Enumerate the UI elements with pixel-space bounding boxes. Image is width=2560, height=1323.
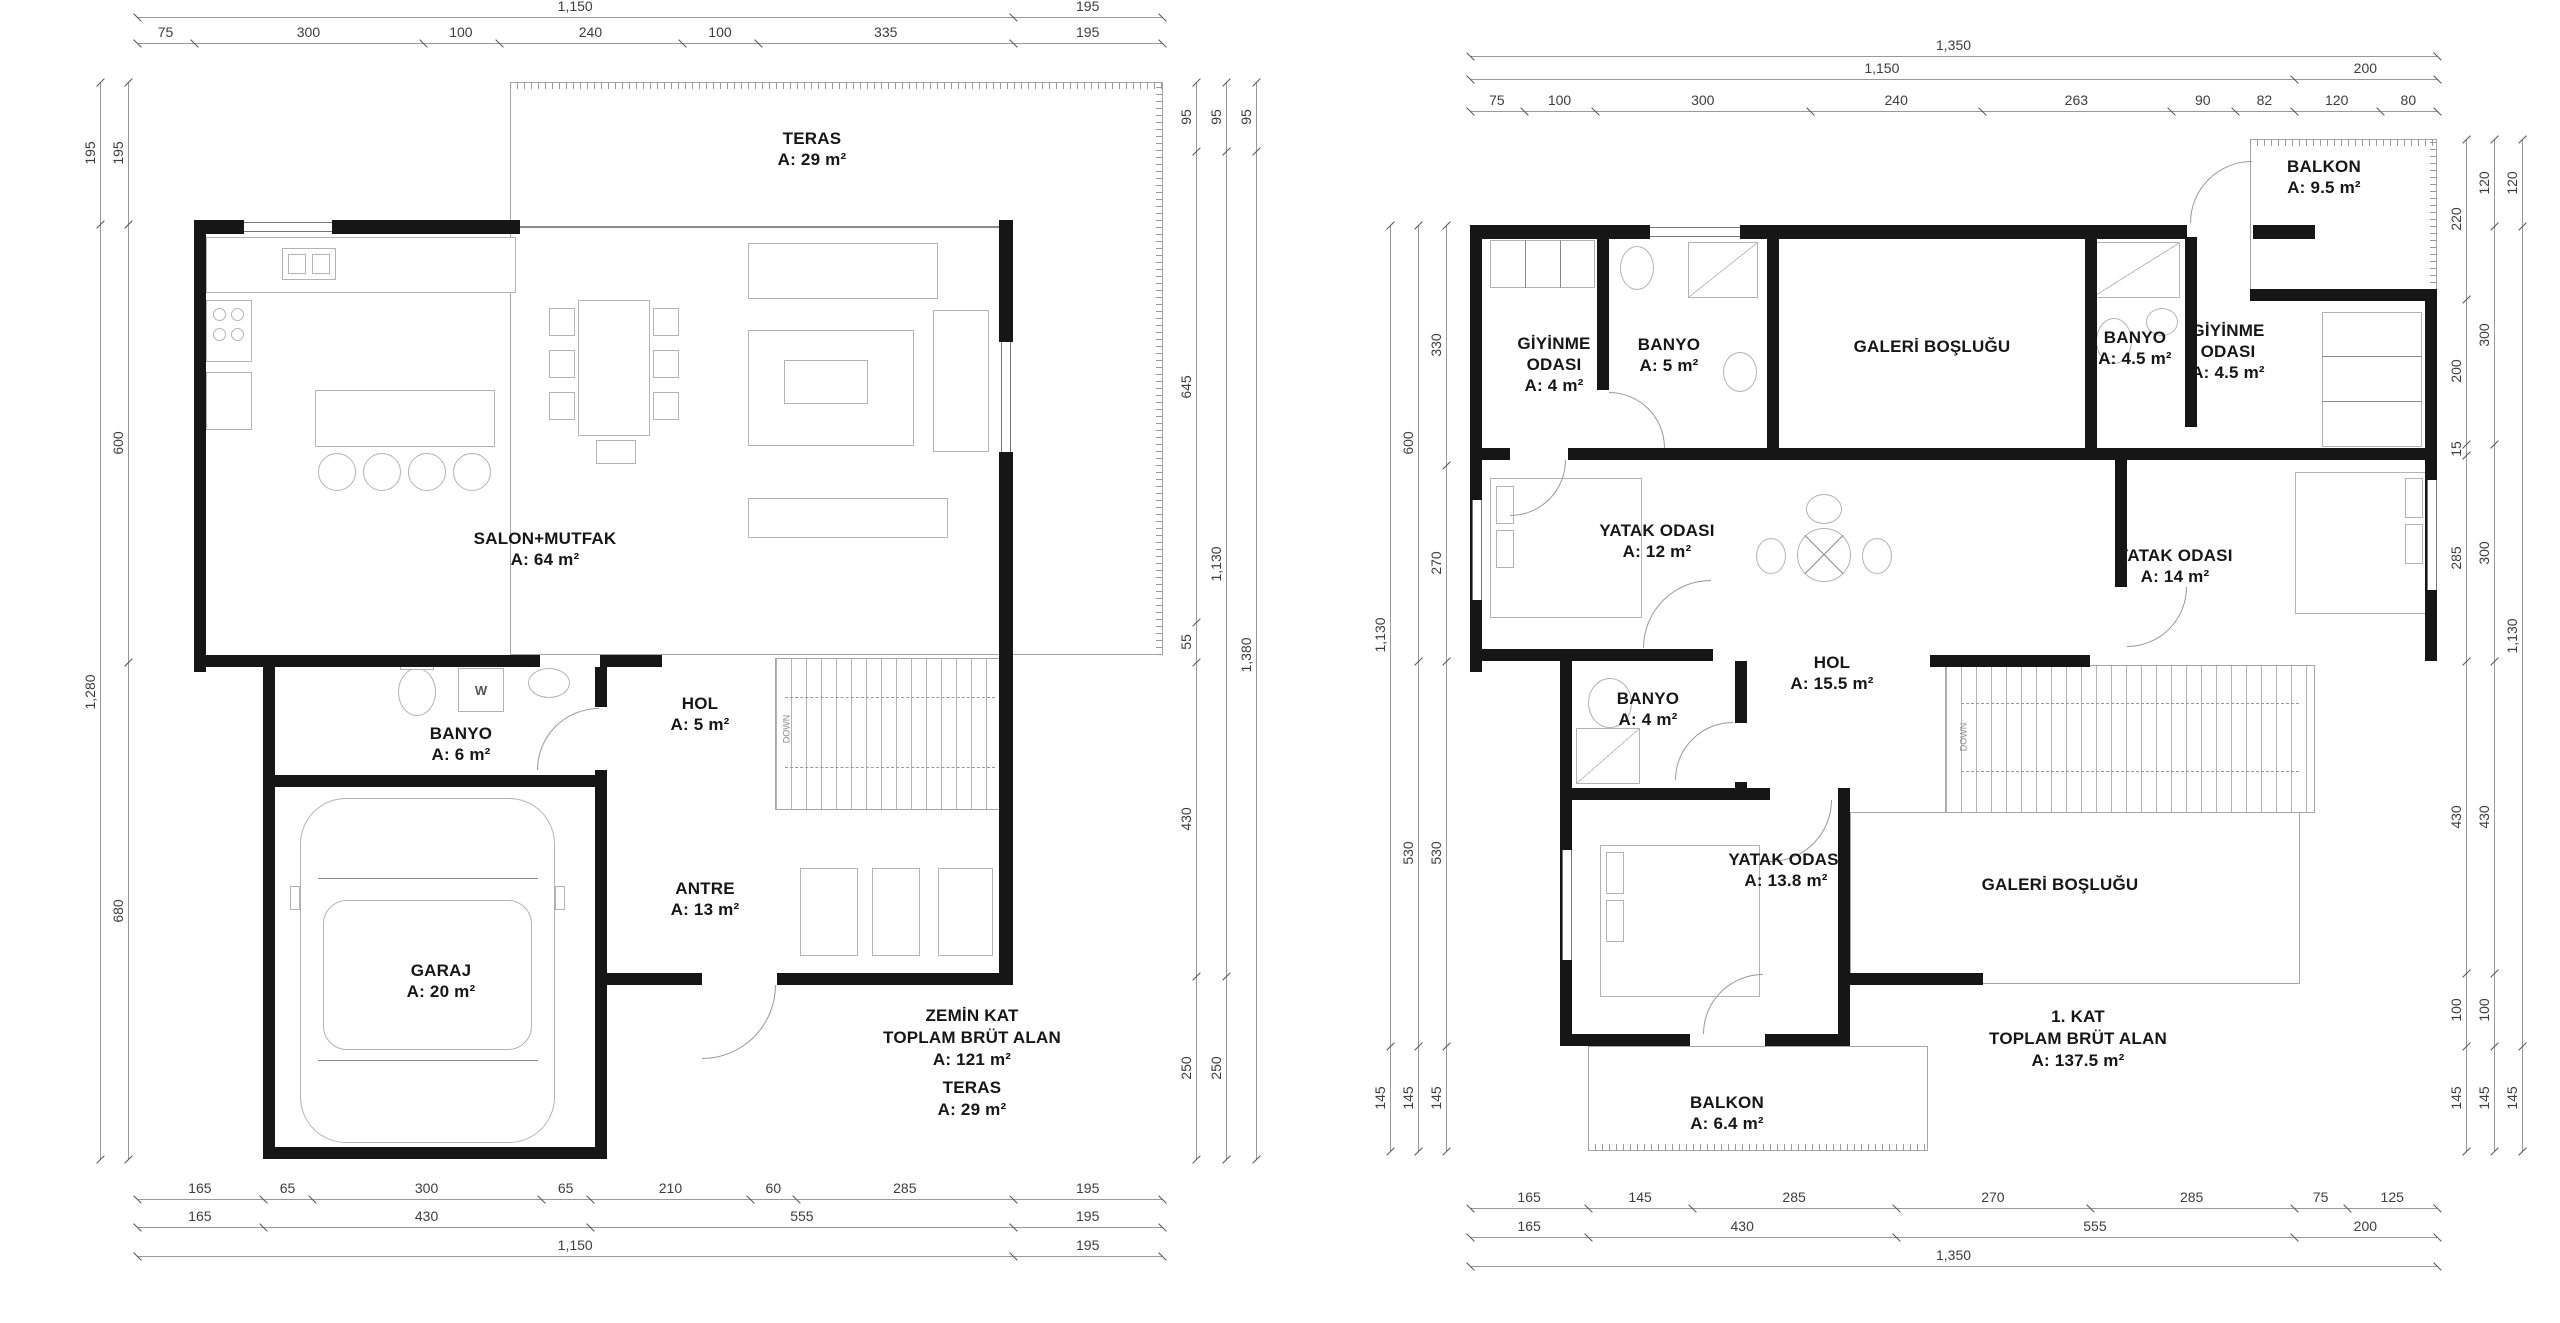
room-label-line: A: 5 m² bbox=[1638, 355, 1700, 376]
title-line: 1. KAT bbox=[1989, 1006, 2167, 1028]
dim-line bbox=[128, 82, 129, 1159]
bench bbox=[800, 868, 858, 956]
dim-label: 65 bbox=[558, 1180, 574, 1196]
dim-label: 75 bbox=[1489, 92, 1505, 108]
shower bbox=[2092, 242, 2180, 298]
wall bbox=[1560, 788, 1770, 800]
dining-table bbox=[578, 300, 650, 436]
room-label-line: BANYO bbox=[1638, 334, 1700, 355]
room-label-line: SALON+MUTFAK bbox=[474, 528, 617, 549]
room-label-garaj: GARAJA: 20 m² bbox=[407, 960, 476, 1002]
door-arc bbox=[702, 985, 776, 1059]
room-label-banyo-sol: BANYOA: 5 m² bbox=[1638, 334, 1700, 376]
bench bbox=[872, 868, 920, 956]
dim-label: 285 bbox=[2448, 546, 2464, 569]
dim-label: 220 bbox=[2448, 207, 2464, 230]
pillow bbox=[1496, 530, 1514, 568]
room-label-salon-mutfak: SALON+MUTFAKA: 64 m² bbox=[474, 528, 617, 570]
dim-line bbox=[1226, 82, 1227, 1159]
wall bbox=[1597, 237, 1609, 390]
dim-label: 240 bbox=[579, 24, 602, 40]
tv-console bbox=[748, 498, 948, 538]
room-label-line: A: 6 m² bbox=[430, 744, 492, 765]
stair-direction-label: DOWN bbox=[781, 715, 791, 744]
dim-label: 100 bbox=[708, 24, 731, 40]
washing-machine: W bbox=[458, 668, 504, 712]
closet bbox=[1490, 240, 1595, 288]
dim-label: 270 bbox=[1428, 551, 1444, 574]
floor-plan-drawing: DOWNWTERASA: 29 m²SALON+MUTFAKA: 64 m²BA… bbox=[0, 0, 2560, 1323]
room-label-banyo: BANYOA: 6 m² bbox=[430, 723, 492, 765]
room-label-yatak-odasi-sag: YATAK ODASIA: 14 m² bbox=[2117, 545, 2232, 587]
stair-walk-line bbox=[1961, 703, 2300, 704]
galeri-alt-outline bbox=[1850, 812, 2300, 984]
dim-label: 250 bbox=[1208, 1056, 1224, 1079]
dim-label: 1,350 bbox=[1936, 1247, 1971, 1263]
room-label-line: A: 29 m² bbox=[778, 149, 847, 170]
pillow bbox=[2405, 478, 2423, 518]
staircase bbox=[775, 658, 1005, 810]
room-label-line: BANYO bbox=[1617, 688, 1679, 709]
dim-label: 100 bbox=[449, 24, 472, 40]
wall bbox=[999, 220, 1013, 342]
door-arc bbox=[1675, 722, 1733, 780]
dim-line bbox=[1470, 111, 2437, 112]
dim-label: 145 bbox=[1372, 1087, 1388, 1110]
wall bbox=[2085, 237, 2097, 460]
wall bbox=[1765, 1034, 1850, 1046]
chair bbox=[596, 440, 636, 464]
dim-label: 285 bbox=[1782, 1189, 1805, 1205]
bar-stool bbox=[453, 453, 491, 491]
wall bbox=[194, 655, 540, 667]
room-label-line: BALKON bbox=[1690, 1092, 1764, 1113]
dim-label: 1,350 bbox=[1936, 37, 1971, 53]
dim-line bbox=[1470, 1208, 2437, 1209]
dim-label: 200 bbox=[2354, 60, 2377, 76]
dim-label: 1,130 bbox=[1372, 618, 1388, 653]
dim-label: 600 bbox=[110, 432, 126, 455]
dim-label: 530 bbox=[1428, 842, 1444, 865]
dim-label: 95 bbox=[1178, 109, 1194, 125]
kitchen-island bbox=[315, 390, 495, 447]
drawing-line bbox=[2322, 401, 2422, 402]
side-mirror bbox=[290, 886, 300, 910]
dim-label: 90 bbox=[2195, 92, 2211, 108]
window bbox=[244, 222, 332, 232]
dim-label: 15 bbox=[2448, 441, 2464, 457]
wall bbox=[194, 220, 206, 672]
stair-walk-line bbox=[1961, 771, 2300, 772]
room-label-galeri-boslugu-alt: GALERİ BOŞLUĞU bbox=[1982, 874, 2139, 895]
room-label-line: A: 6.4 m² bbox=[1690, 1113, 1764, 1134]
dim-label: 530 bbox=[1400, 842, 1416, 865]
room-label-line: A: 64 m² bbox=[474, 549, 617, 570]
dim-line bbox=[137, 1199, 1162, 1200]
dim-label: 600 bbox=[1400, 431, 1416, 454]
door-arc bbox=[2127, 587, 2187, 647]
dim-label: 430 bbox=[2448, 806, 2464, 829]
dim-label: 195 bbox=[1076, 0, 1099, 14]
wall bbox=[1838, 788, 1850, 1046]
title-block-lines: ZEMİN KATTOPLAM BRÜT ALANA: 121 m² bbox=[883, 1005, 1061, 1071]
room-label-line: GALERİ BOŞLUĞU bbox=[1982, 874, 2139, 895]
dim-label: 145 bbox=[1628, 1189, 1651, 1205]
room-label-line: A: 4.5 m² bbox=[2098, 348, 2172, 369]
title-line: ZEMİN KAT bbox=[883, 1005, 1061, 1027]
chair bbox=[549, 308, 575, 336]
drawing-line bbox=[1525, 240, 1526, 288]
dim-label: 645 bbox=[1178, 375, 1194, 398]
wall bbox=[263, 775, 607, 787]
room-label-line: GİYİNME bbox=[2191, 320, 2265, 341]
dim-label: 195 bbox=[1076, 1208, 1099, 1224]
dim-label: 263 bbox=[2065, 92, 2088, 108]
dim-label: 195 bbox=[1076, 1237, 1099, 1253]
wall bbox=[595, 667, 607, 707]
dim-label: 95 bbox=[1238, 109, 1254, 125]
room-label-line: YATAK ODASI bbox=[2117, 545, 2232, 566]
dim-label: 100 bbox=[2448, 998, 2464, 1021]
wash-basin bbox=[528, 668, 570, 698]
dim-label: 100 bbox=[1548, 92, 1571, 108]
pillow bbox=[1606, 852, 1624, 894]
dim-label: 82 bbox=[2257, 92, 2273, 108]
wall bbox=[263, 655, 275, 1159]
side-mirror bbox=[555, 886, 565, 910]
wall bbox=[2085, 448, 2437, 460]
room-label-line: GARAJ bbox=[407, 960, 476, 981]
dim-line bbox=[1470, 56, 2437, 57]
shower bbox=[1576, 728, 1640, 784]
dim-label: 430 bbox=[1178, 808, 1194, 831]
dim-label: 75 bbox=[158, 24, 174, 40]
dim-label: 95 bbox=[1208, 109, 1224, 125]
drawing-line bbox=[1560, 240, 1561, 288]
dim-line bbox=[137, 43, 1162, 44]
chair bbox=[1756, 538, 1786, 574]
sink-bowl bbox=[288, 254, 306, 274]
dim-label: 1,150 bbox=[558, 1237, 593, 1253]
pillow bbox=[1606, 900, 1624, 942]
dim-label: 120 bbox=[2325, 92, 2348, 108]
wall bbox=[2253, 225, 2315, 239]
wall bbox=[1560, 1034, 1690, 1046]
dim-label: 165 bbox=[188, 1180, 211, 1196]
drawing-line bbox=[2322, 356, 2422, 357]
burner bbox=[231, 308, 244, 321]
dim-label: 200 bbox=[2448, 359, 2464, 382]
shower bbox=[1688, 242, 1758, 298]
dim-label: 1,380 bbox=[1238, 638, 1254, 673]
dim-label: 335 bbox=[874, 24, 897, 40]
room-label-line: ODASI bbox=[2191, 341, 2265, 362]
fridge bbox=[206, 372, 252, 430]
stair-walk-line bbox=[785, 767, 995, 768]
bench bbox=[938, 868, 993, 956]
drawing-line bbox=[318, 878, 538, 879]
dim-label: 195 bbox=[110, 142, 126, 165]
room-label-line: BANYO bbox=[2098, 327, 2172, 348]
wall bbox=[1470, 225, 1650, 239]
dim-line bbox=[2522, 139, 2523, 1151]
wall bbox=[1843, 973, 1983, 985]
dim-label: 430 bbox=[1731, 1218, 1754, 1234]
window bbox=[1650, 227, 1740, 237]
drawing-line bbox=[318, 1060, 538, 1061]
room-label-line: BALKON bbox=[2287, 156, 2361, 177]
title-block-teras_lines: TERASA: 29 m² bbox=[938, 1077, 1007, 1121]
room-label-line: A: 4 m² bbox=[1617, 709, 1679, 730]
dim-label: 75 bbox=[2313, 1189, 2329, 1205]
room-label-yatak-odasi-sol: YATAK ODASIA: 12 m² bbox=[1599, 520, 1714, 562]
wall bbox=[1482, 448, 1510, 460]
room-label-line: A: 15.5 m² bbox=[1790, 673, 1873, 694]
wall bbox=[1767, 237, 1779, 460]
dim-label: 145 bbox=[2448, 1087, 2464, 1110]
room-label-hol: HOLA: 15.5 m² bbox=[1790, 652, 1873, 694]
sofa bbox=[933, 310, 989, 452]
door-arc bbox=[1643, 580, 1711, 648]
wall bbox=[263, 1147, 607, 1159]
room-label-line: A: 14 m² bbox=[2117, 566, 2232, 587]
room-label-line: A: 13 m² bbox=[671, 899, 740, 920]
door-arc bbox=[1609, 392, 1665, 448]
chair bbox=[549, 392, 575, 420]
window bbox=[2427, 480, 2437, 590]
room-label-giyinme-odasi-sol: GİYİNMEODASIA: 4 m² bbox=[1517, 333, 1590, 396]
dim-label: 680 bbox=[110, 899, 126, 922]
room-label-line: A: 5 m² bbox=[670, 714, 729, 735]
edge-hatch bbox=[2430, 139, 2437, 297]
bar-stool bbox=[408, 453, 446, 491]
dim-line bbox=[1256, 82, 1257, 1159]
title-line: A: 137.5 m² bbox=[1989, 1050, 2167, 1072]
dim-label: 210 bbox=[659, 1180, 682, 1196]
chair bbox=[1862, 538, 1892, 574]
dim-line bbox=[137, 1227, 1162, 1228]
dim-label: 285 bbox=[893, 1180, 916, 1196]
wall bbox=[999, 667, 1013, 985]
burner bbox=[213, 328, 226, 341]
chair bbox=[653, 350, 679, 378]
dim-line bbox=[1470, 1266, 2437, 1267]
door-arc bbox=[2190, 161, 2252, 223]
edge-hatch bbox=[510, 82, 1163, 89]
dim-label: 195 bbox=[82, 142, 98, 165]
dim-label: 60 bbox=[766, 1180, 782, 1196]
dim-label: 55 bbox=[1178, 635, 1194, 651]
dim-line bbox=[2466, 139, 2467, 1151]
toilet bbox=[398, 668, 436, 716]
room-label-hol: HOLA: 5 m² bbox=[670, 693, 729, 735]
room-label-line: A: 4.5 m² bbox=[2191, 362, 2265, 383]
bar-stool bbox=[363, 453, 401, 491]
wall bbox=[1767, 448, 2097, 460]
window bbox=[1001, 342, 1011, 452]
dim-label: 555 bbox=[790, 1208, 813, 1224]
dim-label: 165 bbox=[1517, 1218, 1540, 1234]
room-label-line: YATAK ODASI bbox=[1728, 849, 1843, 870]
kitchen-counter bbox=[206, 237, 516, 293]
pillow bbox=[2405, 524, 2423, 564]
title-line: TERAS bbox=[938, 1077, 1007, 1099]
room-label-banyo-orta: BANYOA: 4 m² bbox=[1617, 688, 1679, 730]
dim-label: 145 bbox=[1428, 1087, 1444, 1110]
dim-line bbox=[1418, 225, 1419, 1151]
room-label-line: A: 20 m² bbox=[407, 981, 476, 1002]
dim-label: 195 bbox=[1076, 1180, 1099, 1196]
dim-line bbox=[2494, 139, 2495, 1151]
dim-label: 120 bbox=[2504, 171, 2520, 194]
chair bbox=[549, 350, 575, 378]
room-label-line: ODASI bbox=[1517, 354, 1590, 375]
dim-label: 195 bbox=[1076, 24, 1099, 40]
dim-label: 165 bbox=[1517, 1189, 1540, 1205]
wall bbox=[332, 220, 520, 234]
dim-label: 300 bbox=[1691, 92, 1714, 108]
dim-label: 1,130 bbox=[2504, 618, 2520, 653]
room-label-balkon-alt: BALKONA: 6.4 m² bbox=[1690, 1092, 1764, 1134]
dim-line bbox=[137, 1256, 1162, 1257]
wash-basin bbox=[1723, 352, 1757, 392]
room-label-line: GİYİNME bbox=[1517, 333, 1590, 354]
wall bbox=[595, 787, 607, 1159]
dim-label: 240 bbox=[1885, 92, 1908, 108]
chair bbox=[653, 392, 679, 420]
dim-line bbox=[1390, 225, 1391, 1151]
wall bbox=[777, 973, 1013, 985]
room-label-yatak-odasi-alt: YATAK ODASIA: 13.8 m² bbox=[1728, 849, 1843, 891]
room-label-line: YATAK ODASI bbox=[1599, 520, 1714, 541]
title-line: TOPLAM BRÜT ALAN bbox=[1989, 1028, 2167, 1050]
chair bbox=[653, 308, 679, 336]
coffee-table bbox=[784, 360, 868, 404]
title-line: TOPLAM BRÜT ALAN bbox=[883, 1027, 1061, 1049]
burner bbox=[213, 308, 226, 321]
dim-label: 555 bbox=[2083, 1218, 2106, 1234]
dim-label: 250 bbox=[1178, 1056, 1194, 1079]
stair-direction-label: DOWN bbox=[1958, 723, 1968, 752]
dim-label: 300 bbox=[297, 24, 320, 40]
dim-label: 1,280 bbox=[82, 674, 98, 709]
room-label-giyinme-odasi-sag: GİYİNMEODASIA: 4.5 m² bbox=[2191, 320, 2265, 383]
room-label-balkon-ust: BALKONA: 9.5 m² bbox=[2287, 156, 2361, 198]
room-label-antre: ANTREA: 13 m² bbox=[671, 878, 740, 920]
wall bbox=[1740, 225, 2187, 239]
wall bbox=[1930, 655, 2090, 667]
sofa bbox=[748, 243, 938, 299]
door-arc bbox=[537, 708, 599, 770]
staircase bbox=[1945, 665, 2315, 813]
stair-walk-line bbox=[785, 697, 995, 698]
dim-label: 285 bbox=[2180, 1189, 2203, 1205]
dim-line bbox=[1470, 1237, 2437, 1238]
dim-label: 200 bbox=[2354, 1218, 2377, 1234]
window bbox=[1562, 850, 1572, 960]
bar-stool bbox=[318, 453, 356, 491]
room-label-banyo-sag: BANYOA: 4.5 m² bbox=[2098, 327, 2172, 369]
dim-label: 1,130 bbox=[1208, 546, 1224, 581]
edge-hatch bbox=[1156, 82, 1163, 655]
wall bbox=[1735, 661, 1747, 723]
dim-label: 270 bbox=[1981, 1189, 2004, 1205]
dim-label: 300 bbox=[2476, 323, 2492, 346]
room-label-line: GALERİ BOŞLUĞU bbox=[1854, 336, 2011, 357]
dim-line bbox=[100, 82, 101, 1159]
dim-label: 165 bbox=[188, 1208, 211, 1224]
room-label-line: A: 12 m² bbox=[1599, 541, 1714, 562]
drawing-line bbox=[518, 226, 999, 228]
wall bbox=[999, 452, 1013, 672]
dim-label: 125 bbox=[2381, 1189, 2404, 1205]
wall bbox=[1482, 649, 1713, 661]
title-block-lines: 1. KATTOPLAM BRÜT ALANA: 137.5 m² bbox=[1989, 1006, 2167, 1072]
wall bbox=[1568, 448, 1778, 460]
chair bbox=[1806, 494, 1842, 524]
dim-label: 430 bbox=[2476, 806, 2492, 829]
burner bbox=[231, 328, 244, 341]
dim-label: 145 bbox=[1400, 1087, 1416, 1110]
wardrobe bbox=[2322, 312, 2422, 447]
dim-label: 1,150 bbox=[558, 0, 593, 14]
toilet bbox=[1620, 246, 1654, 290]
window bbox=[1472, 500, 1482, 600]
dim-label: 1,150 bbox=[1864, 60, 1899, 76]
dim-label: 300 bbox=[2476, 541, 2492, 564]
title-line: A: 121 m² bbox=[883, 1049, 1061, 1071]
room-label-line: ANTRE bbox=[671, 878, 740, 899]
dim-line bbox=[137, 17, 1162, 18]
wall bbox=[600, 655, 662, 667]
dim-label: 65 bbox=[280, 1180, 296, 1196]
room-label-line: TERAS bbox=[778, 128, 847, 149]
dim-line bbox=[1470, 79, 2437, 80]
dim-label: 300 bbox=[415, 1180, 438, 1196]
title-line: A: 29 m² bbox=[938, 1099, 1007, 1121]
room-label-line: A: 9.5 m² bbox=[2287, 177, 2361, 198]
wall bbox=[607, 973, 702, 985]
room-label-line: HOL bbox=[670, 693, 729, 714]
edge-hatch bbox=[2250, 139, 2437, 146]
sink-bowl bbox=[312, 254, 330, 274]
wall bbox=[1470, 225, 1482, 672]
dim-label: 145 bbox=[2504, 1087, 2520, 1110]
dim-label: 120 bbox=[2476, 171, 2492, 194]
dim-label: 330 bbox=[1428, 333, 1444, 356]
room-label-galeri-boslugu-ust: GALERİ BOŞLUĞU bbox=[1854, 336, 2011, 357]
room-label-line: BANYO bbox=[430, 723, 492, 744]
dim-line bbox=[1446, 225, 1447, 1151]
edge-hatch bbox=[1588, 1144, 1928, 1151]
room-label-line: HOL bbox=[1790, 652, 1873, 673]
dim-label: 145 bbox=[2476, 1087, 2492, 1110]
dim-label: 80 bbox=[2401, 92, 2417, 108]
room-label-teras: TERASA: 29 m² bbox=[778, 128, 847, 170]
room-label-line: A: 4 m² bbox=[1517, 375, 1590, 396]
wall bbox=[2250, 289, 2437, 301]
dim-label: 100 bbox=[2476, 998, 2492, 1021]
room-label-line: A: 13.8 m² bbox=[1728, 870, 1843, 891]
dim-label: 430 bbox=[415, 1208, 438, 1224]
